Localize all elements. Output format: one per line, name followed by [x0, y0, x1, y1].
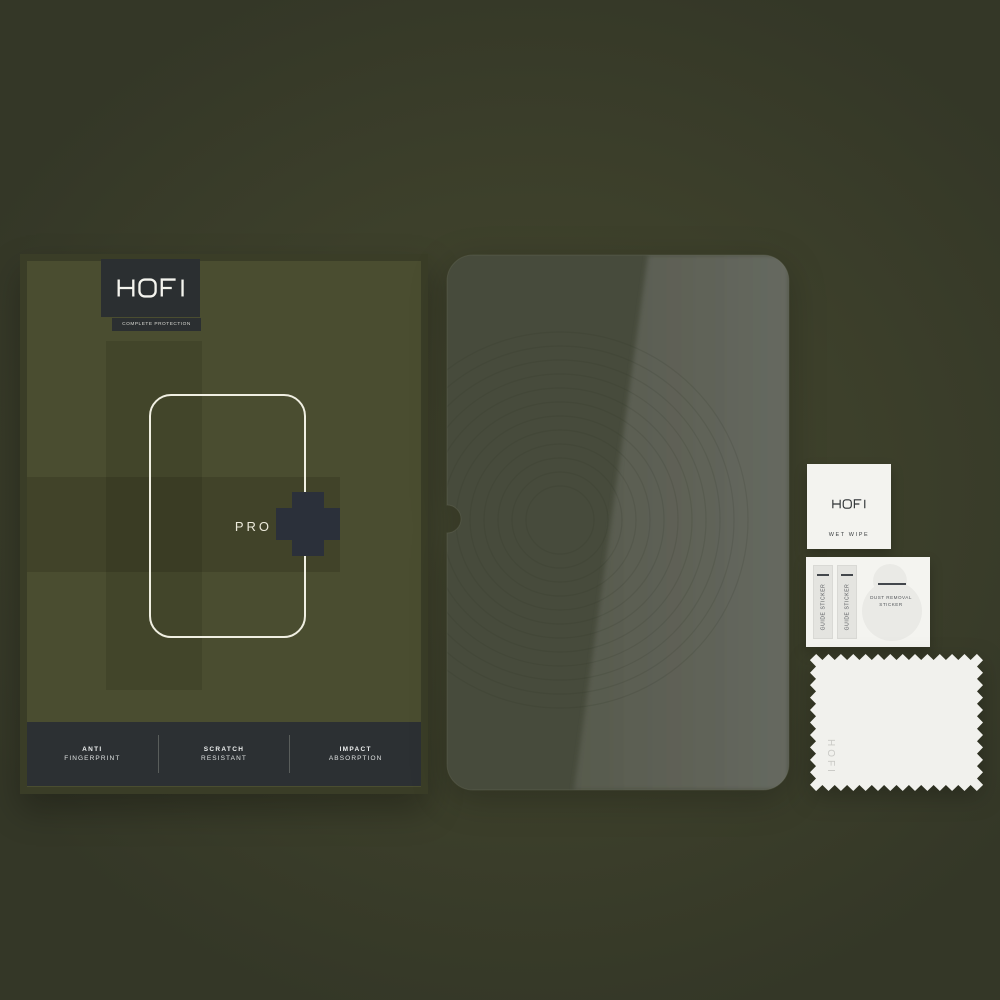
hofi-logo-icon	[832, 499, 866, 509]
guide-sticker-label: GUIDE STICKER	[820, 584, 826, 631]
microfiber-cloth: HOFI	[810, 654, 983, 791]
screen-protector	[445, 253, 791, 792]
wet-wipe-sachet: WET WIPE	[807, 464, 891, 549]
product-photo: COMPLETE PROTECTION PRO ANTI FINGERPRINT…	[0, 0, 1000, 1000]
guide-sticker: GUIDE STICKER	[813, 565, 833, 639]
guide-sticker: GUIDE STICKER	[837, 565, 857, 639]
product-box: COMPLETE PROTECTION PRO ANTI FINGERPRINT…	[20, 254, 428, 794]
feature-impact-absorption: IMPACT ABSORPTION	[290, 746, 421, 762]
sticker-line	[878, 583, 906, 585]
dust-removal-sticker	[862, 581, 922, 641]
sticker-sheet: GUIDE STICKER GUIDE STICKER DUST REMOVAL…	[806, 557, 930, 647]
feature-scratch-resistant: SCRATCH RESISTANT	[159, 746, 290, 762]
plus-icon	[292, 492, 324, 556]
guide-sticker-label: GUIDE STICKER	[844, 584, 850, 631]
hofi-logo-panel	[101, 259, 200, 317]
cloth-brand: HOFI	[824, 730, 836, 784]
cloth-body: HOFI	[810, 654, 983, 791]
hofi-logo-icon	[117, 278, 185, 298]
box-tagline: COMPLETE PROTECTION	[112, 318, 201, 331]
pro-label: PRO	[218, 519, 272, 534]
feature-anti-fingerprint: ANTI FINGERPRINT	[27, 746, 158, 762]
wet-wipe-label: WET WIPE	[807, 532, 891, 538]
features-bar: ANTI FINGERPRINT SCRATCH RESISTANT IMPAC…	[27, 722, 421, 786]
dust-removal-label: DUST REMOVAL STICKER	[856, 594, 926, 608]
